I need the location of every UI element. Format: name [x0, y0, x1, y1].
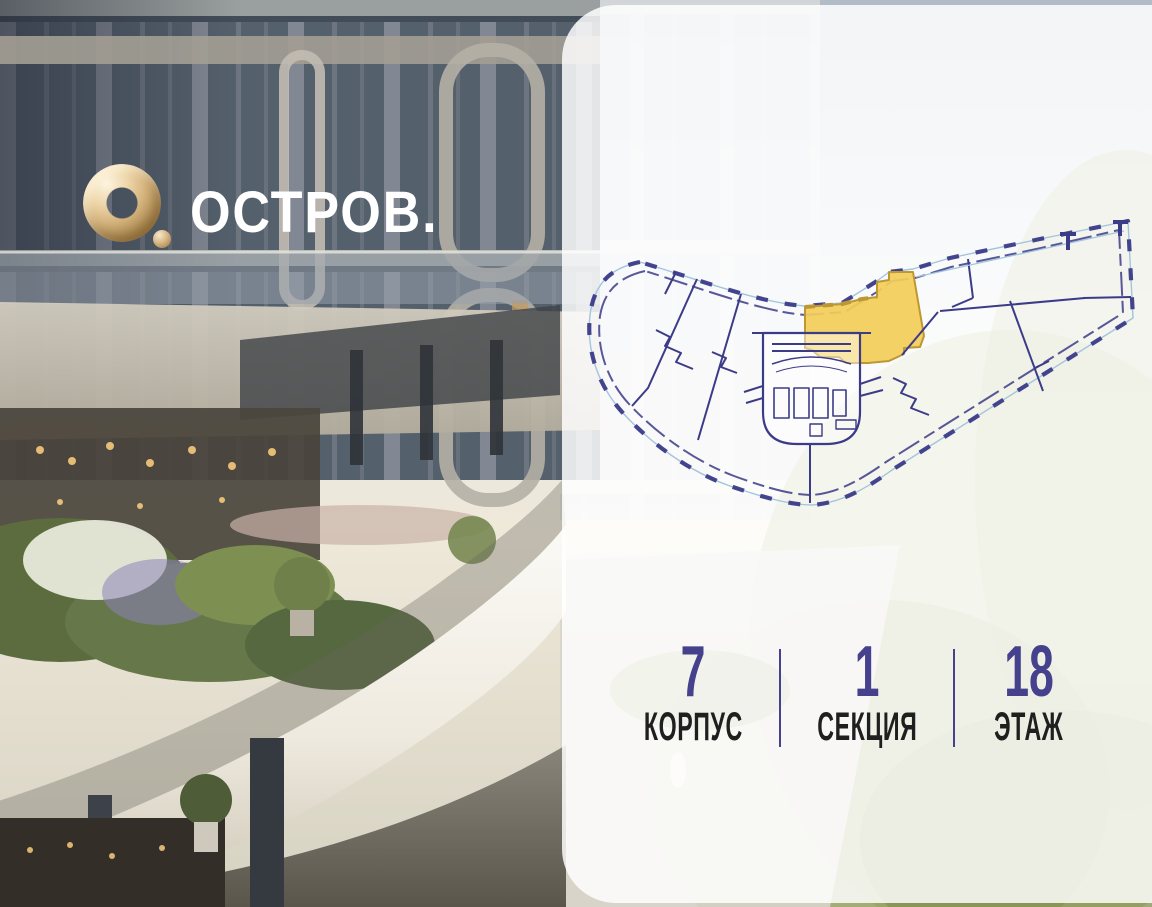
- building-number: 7: [681, 643, 706, 701]
- floor-label: ЭТАЖ: [994, 710, 1063, 744]
- floor-number: 18: [1004, 643, 1054, 701]
- floor-plan: [560, 200, 1152, 520]
- promo-card: ОСТРОВ. 7 КОРПУС 1 СЕКЦИЯ 18 ЭТАЖ: [0, 0, 1152, 907]
- brand-ring-icon: [83, 164, 161, 242]
- floor-info: 18 ЭТАЖ: [955, 641, 1102, 751]
- building-label: КОРПУС: [644, 710, 743, 744]
- brand-name: ОСТРОВ.: [190, 184, 438, 242]
- brand-dot-icon: [153, 230, 171, 248]
- balcony-rail-line: [916, 231, 1124, 277]
- section-info: 1 СЕКЦИЯ: [781, 641, 954, 751]
- unit-info-row: 7 КОРПУС 1 СЕКЦИЯ 18 ЭТАЖ: [608, 641, 1102, 751]
- building-info: 7 КОРПУС: [608, 641, 779, 751]
- section-label: СЕКЦИЯ: [817, 710, 917, 744]
- brand-logo: ОСТРОВ.: [80, 158, 500, 258]
- section-number: 1: [855, 643, 880, 701]
